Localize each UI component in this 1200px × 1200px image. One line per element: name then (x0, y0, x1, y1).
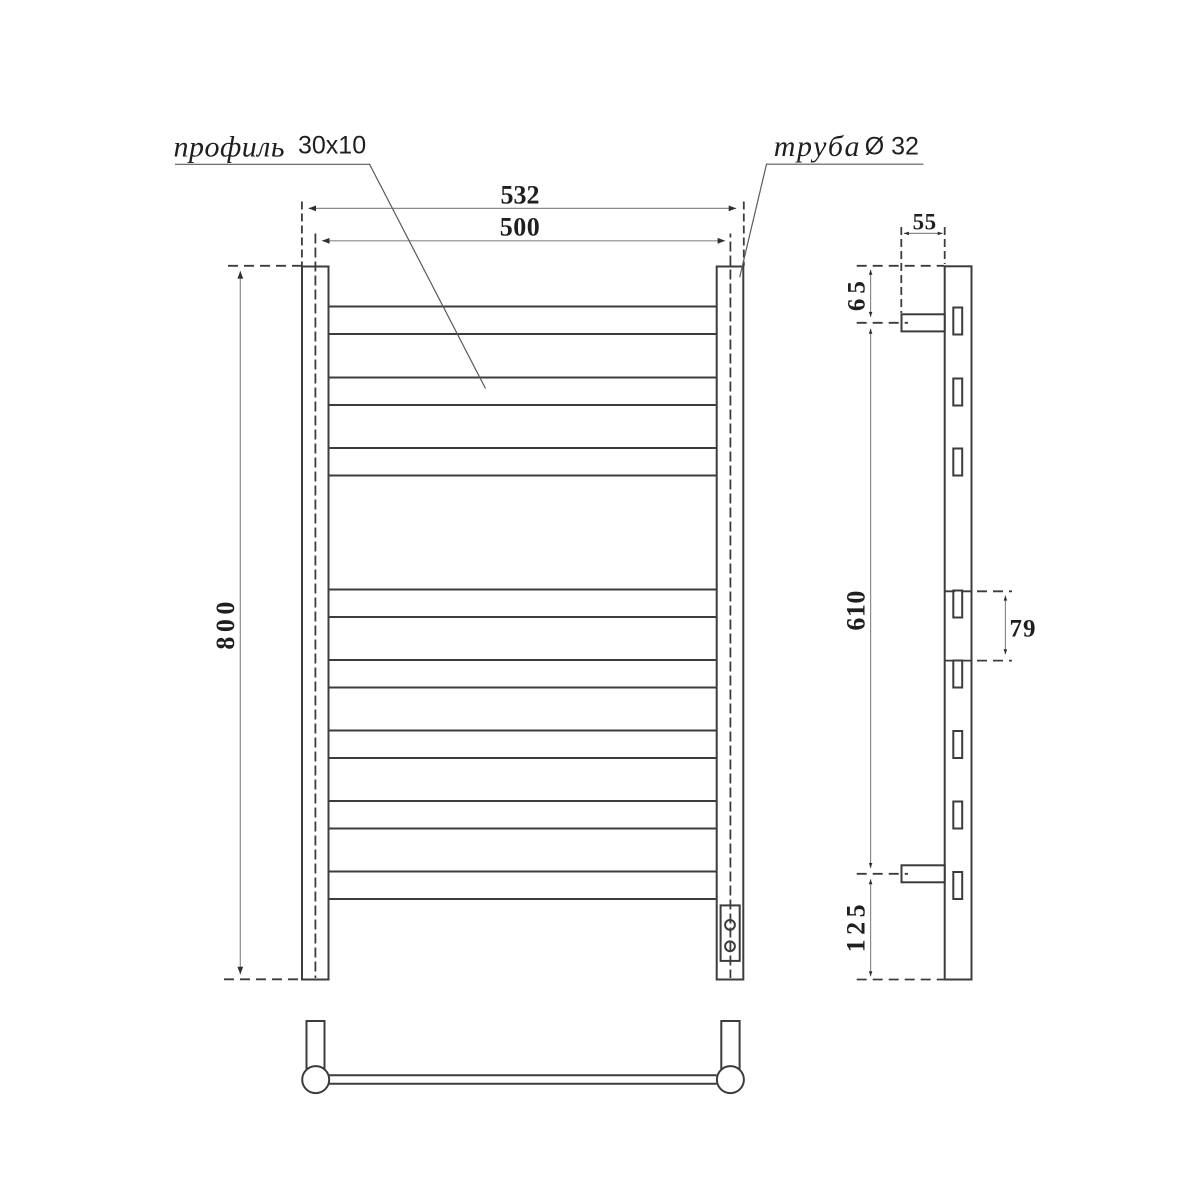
svg-text:65: 65 (844, 276, 871, 311)
svg-text:профиль: профиль (174, 131, 286, 164)
svg-text:800: 800 (211, 597, 240, 650)
svg-text:125: 125 (841, 900, 870, 953)
svg-text:500: 500 (500, 213, 541, 242)
svg-text:79: 79 (1010, 615, 1037, 642)
svg-text:55: 55 (913, 210, 937, 235)
svg-text:610: 610 (842, 590, 871, 631)
svg-text:30x10: 30x10 (298, 132, 366, 160)
svg-text:Ø 32: Ø 32 (865, 133, 919, 161)
svg-text:532: 532 (501, 180, 540, 209)
svg-text:труба: труба (774, 130, 861, 163)
